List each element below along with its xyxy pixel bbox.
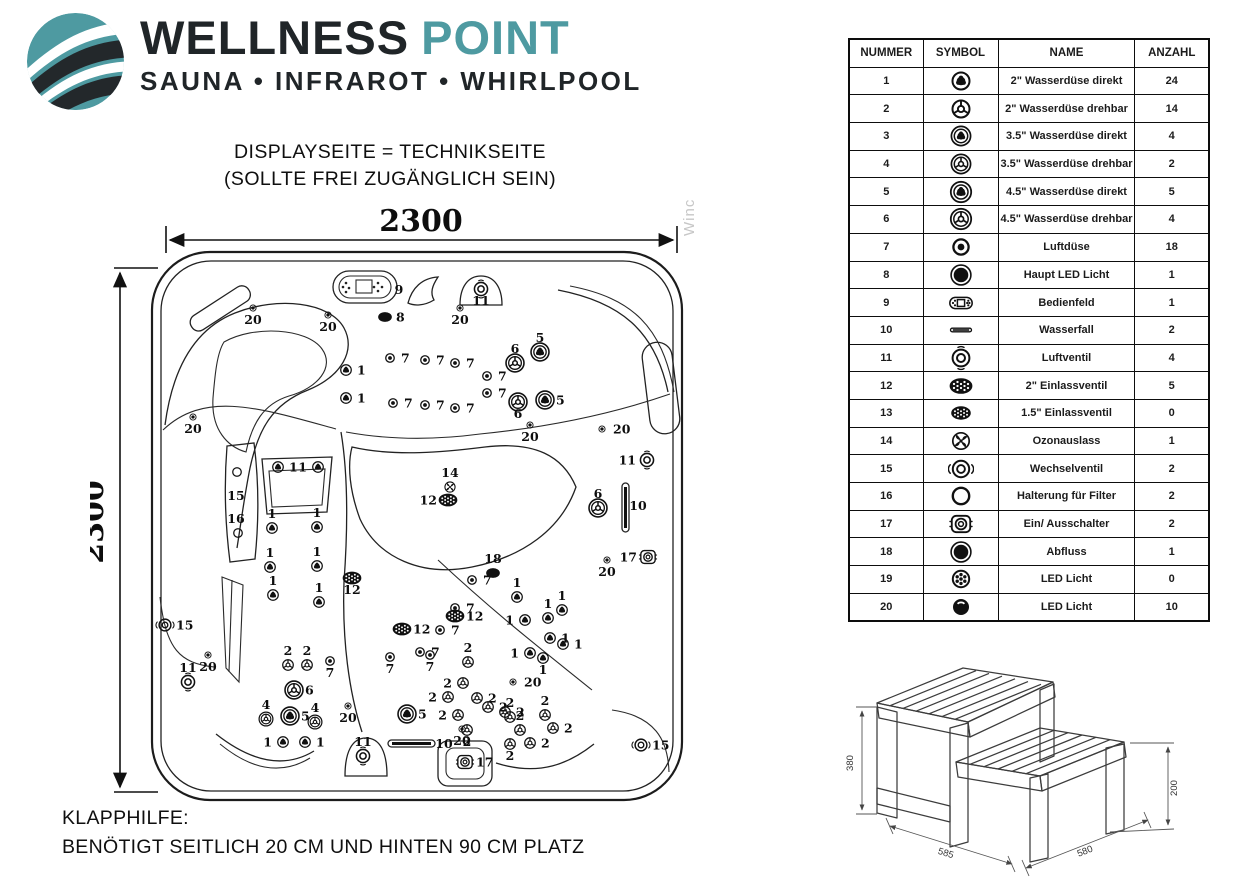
part-name: 2" Wasserdüse drehbar [998,95,1135,123]
parts-table: NUMMER SYMBOL NAME ANZAHL 12" Wasserdüse… [848,38,1210,622]
jet-marker-7: 7 [436,623,460,638]
part-name: Luftventil [998,344,1135,372]
svg-text:1: 1 [357,363,366,378]
svg-text:2: 2 [303,643,312,658]
table-row: 16Halterung für Filter2 [849,483,1209,511]
svg-text:20: 20 [199,659,217,674]
part-number: 13 [849,399,923,427]
jet-marker-5: 5 [398,705,427,723]
brand-secondary: POINT [421,11,570,64]
table-row: 12" Wasserdüse direkt24 [849,67,1209,95]
part-qty: 0 [1135,566,1209,594]
svg-text:2: 2 [541,693,550,708]
part-qty: 10 [1135,593,1209,621]
height-dimension: 2300 [90,480,111,564]
svg-text:1: 1 [316,735,325,750]
jet-4.5in-rotate-icon [948,206,974,232]
svg-text:1: 1 [268,506,277,521]
svg-text:2: 2 [464,640,473,655]
svg-text:20: 20 [613,422,631,437]
part-name: 4.5" Wasserdüse direkt [998,178,1135,206]
whirlpool-top-view-diagram: 2300 2300 Winc [90,196,710,818]
logo-text: WELLNESSPOINT SAUNA • INFRAROT • WHIRLPO… [140,12,642,97]
jet-marker-20: 20 [599,422,631,437]
svg-text:4: 4 [311,700,320,715]
jet-marker-1: 1 [312,544,323,571]
svg-text:7: 7 [401,351,410,366]
jet-marker-8: 8 [378,310,405,325]
table-row: 10Wasserfall2 [849,316,1209,344]
jet-marker-7: 7 [386,351,410,366]
part-qty: 2 [1135,150,1209,178]
svg-text:20: 20 [598,564,616,579]
svg-text:7: 7 [466,356,475,371]
display-side-note: DISPLAYSEITE = TECHNIKSEITE (SOLLTE FREI… [140,139,640,193]
svg-text:2: 2 [438,708,447,723]
air-jet-icon [948,234,974,260]
part-name: Ein/ Ausschalter [998,510,1135,538]
jet-marker-11: 11 [179,660,196,691]
note-bottom-line1: KLAPPHILFE: [62,804,584,833]
part-name: 4.5" Wasserdüse drehbar [998,206,1135,234]
jet-marker-1: 1 [314,580,325,607]
ozone-outlet-icon [948,428,974,454]
svg-text:2: 2 [463,734,472,749]
svg-text:11: 11 [354,734,371,749]
svg-text:1: 1 [357,391,366,406]
svg-text:12: 12 [420,493,437,508]
svg-text:20: 20 [521,429,539,444]
jet-3.5in-rotate-icon [948,151,974,177]
jet-marker-2: 2 [302,643,313,670]
svg-text:1: 1 [315,580,324,595]
part-number: 5 [849,178,923,206]
jet-marker-2: 2 [515,708,526,735]
jet-marker-7: 7 [389,396,413,411]
jet-marker-15: 15 [632,738,669,753]
part-name: Haupt LED Licht [998,261,1135,289]
part-name: Wasserfall [998,316,1135,344]
jet-marker-1: 1 [267,506,278,533]
table-row: 43.5" Wasserdüse drehbar2 [849,150,1209,178]
note-top-line1: DISPLAYSEITE = TECHNIKSEITE [140,139,640,166]
jet-marker-1: 1 [558,637,583,652]
svg-text:6: 6 [511,341,520,356]
jet-marker-12: 12 [343,572,361,597]
table-row: 122" Einlassventil5 [849,372,1209,400]
part-name: Bedienfeld [998,289,1135,317]
part-number: 4 [849,150,923,178]
svg-text:7: 7 [498,386,507,401]
svg-text:1: 1 [263,735,272,750]
jet-marker- [233,468,242,477]
svg-text:1: 1 [505,613,514,628]
part-number: 6 [849,206,923,234]
watermark-text: Winc [681,199,698,236]
jet-label: 9 [395,282,404,297]
table-row: 17Ein/ Ausschalter2 [849,510,1209,538]
svg-text:6: 6 [514,406,523,421]
jet-marker-18: 18 [484,551,502,578]
part-qty: 18 [1135,233,1209,261]
jet-marker-5: 5 [531,330,549,361]
part-name: LED Licht [998,566,1135,594]
jet-marker-14: 14 [441,465,459,492]
svg-text:5: 5 [556,393,565,408]
jet-marker-1: 1 [298,460,323,475]
table-row: 9Bedienfeld1 [849,289,1209,317]
part-number: 7 [849,233,923,261]
part-number: 19 [849,566,923,594]
table-row: 131.5" Einlassventil0 [849,399,1209,427]
svg-text:7: 7 [386,661,395,676]
jet-label: 16 [227,511,245,526]
svg-text:12: 12 [343,582,360,597]
part-qty: 5 [1135,178,1209,206]
control-panel-icon [948,290,974,316]
svg-text:20: 20 [184,421,202,436]
svg-text:2: 2 [564,721,573,736]
table-row: 7Luftdüse18 [849,233,1209,261]
jet-label: 10 [629,498,647,513]
jet-marker-7: 7 [451,401,475,416]
part-number: 18 [849,538,923,566]
svg-text:20: 20 [524,675,542,690]
part-number: 3 [849,123,923,151]
table-row: 18Abfluss1 [849,538,1209,566]
jet-marker-11: 11 [472,280,489,308]
jet-label: 15 [227,488,244,503]
jet-marker-12: 12 [393,622,430,637]
brand-name: WELLNESSPOINT [140,12,642,64]
table-row: 14Ozonauslass1 [849,427,1209,455]
svg-text:2: 2 [443,676,452,691]
part-qty: 4 [1135,123,1209,151]
jet-label: 10 [435,736,453,751]
jet-marker-2: 2 [505,739,516,763]
svg-text:1: 1 [558,588,567,603]
jet-marker-7: 7 [421,398,445,413]
jet-marker-11: 11 [354,734,371,765]
jet-marker-7: 7 [326,657,335,680]
jet-marker-15: 15 [156,618,193,633]
col-header-nummer: NUMMER [849,39,923,67]
jet-marker-5: 5 [281,707,310,725]
jet-marker-2: 2 [548,721,573,736]
table-row: 54.5" Wasserdüse direkt5 [849,178,1209,206]
part-qty: 2 [1135,483,1209,511]
part-qty: 1 [1135,538,1209,566]
svg-text:9: 9 [395,282,404,297]
jet-marker-1: 1 [512,575,523,602]
part-qty: 1 [1135,261,1209,289]
svg-text:10: 10 [629,498,647,513]
logo: WELLNESSPOINT SAUNA • INFRAROT • WHIRLPO… [26,12,642,111]
table-row: 8Haupt LED Licht1 [849,261,1209,289]
jet-marker-1: 1 [263,735,288,750]
steps-height-step: 200 [1169,780,1180,796]
svg-text:20: 20 [451,312,469,327]
jet-marker- [234,529,243,538]
dimension-lines: 2300 2300 [90,204,677,792]
jet-marker-1: 1 [543,596,554,623]
part-qty: 4 [1135,344,1209,372]
steps-diagram: 380 200 585 580 [835,650,1234,888]
part-qty: 0 [1135,399,1209,427]
jet-marker-20: 20 [451,305,469,327]
jet-marker-7: 7 [421,353,445,368]
jet-marker-1: 1 [268,573,279,600]
part-number: 20 [849,593,923,621]
svg-text:10: 10 [435,736,453,751]
brand-tagline: SAUNA • INFRAROT • WHIRLPOOL [140,66,642,97]
jet-marker-2: 2 [463,640,474,667]
logo-globe-icon [26,12,125,111]
jet-marker-1: 1 [505,613,530,628]
jet-marker-1: 1 [538,653,549,677]
inlet-valve-2in-icon [948,373,974,399]
svg-text:1: 1 [269,573,278,588]
svg-text:20: 20 [339,710,357,725]
svg-text:7: 7 [326,665,335,680]
part-number: 12 [849,372,923,400]
jet-marker-17: 17 [620,550,657,565]
svg-text:15: 15 [227,488,244,503]
svg-text:2: 2 [428,690,437,705]
part-number: 1 [849,67,923,95]
svg-text:7: 7 [498,369,507,384]
steps-height-total: 380 [845,755,856,771]
table-row: 11Luftventil4 [849,344,1209,372]
svg-text:2: 2 [506,695,515,710]
svg-text:2: 2 [284,643,293,658]
jet-marker-1: 1 [265,545,276,572]
led-light-dark-icon [948,594,974,620]
part-number: 9 [849,289,923,317]
part-name: Ozonauslass [998,427,1135,455]
part-name: Wechselventil [998,455,1135,483]
col-header-name: NAME [998,39,1135,67]
col-header-symbol: SYMBOL [923,39,998,67]
table-row: 19LED Licht0 [849,566,1209,594]
part-name: 2" Einlassventil [998,372,1135,400]
jet-marker-5: 5 [536,391,565,409]
jet-marker-6: 6 [285,681,314,699]
svg-text:5: 5 [418,707,427,722]
jet-marker-7: 7 [483,386,507,401]
jet-marker-20: 20 [510,675,542,690]
part-number: 14 [849,427,923,455]
svg-text:2: 2 [541,736,550,751]
svg-text:1: 1 [289,460,298,475]
part-number: 8 [849,261,923,289]
jet-markers-layer: 2020202089111177777777656520201110172067… [156,280,669,769]
jet-marker-7: 7 [483,369,507,384]
svg-text:11: 11 [472,293,489,308]
svg-text:16: 16 [227,511,245,526]
jet-marker-20: 20 [521,422,539,444]
steps-depth-left: 585 [937,846,955,861]
table-row: 22" Wasserdüse drehbar14 [849,95,1209,123]
jet-2in-direct-icon [948,68,974,94]
svg-text:11: 11 [179,660,196,675]
jet-marker-6: 6 [589,486,607,517]
klapphilfe-note: KLAPPHILFE: BENÖTIGT SEITLICH 20 CM UND … [62,804,584,862]
jet-marker-1: 1 [273,460,298,475]
jet-marker-11: 11 [619,451,654,469]
power-switch-icon [948,511,974,537]
table-header-row: NUMMER SYMBOL NAME ANZAHL [849,39,1209,67]
main-led-icon [948,262,974,288]
part-number: 16 [849,483,923,511]
jet-marker-2: 2 [525,736,550,751]
svg-text:5: 5 [536,330,545,345]
svg-text:8: 8 [396,310,405,325]
part-name: 3.5" Wasserdüse drehbar [998,150,1135,178]
svg-text:6: 6 [305,683,314,698]
part-number: 10 [849,316,923,344]
jet-marker-20: 20 [199,652,217,674]
jet-marker-20: 20 [319,312,337,334]
jet-marker-1: 1 [557,588,568,615]
waterfall-icon [948,317,974,343]
svg-text:1: 1 [544,596,553,611]
part-number: 11 [849,344,923,372]
svg-text:7: 7 [451,623,460,638]
jet-marker-1: 1 [341,363,366,378]
table-row: 64.5" Wasserdüse drehbar4 [849,206,1209,234]
part-number: 2 [849,95,923,123]
jet-3.5in-direct-icon [948,123,974,149]
note-bottom-line2: BENÖTIGT SEITLICH 20 CM UND HINTEN 90 CM… [62,833,584,862]
svg-text:1: 1 [574,637,583,652]
svg-text:4: 4 [262,697,271,712]
svg-text:1: 1 [513,575,522,590]
svg-text:1: 1 [313,505,322,520]
svg-text:1: 1 [313,544,322,559]
svg-text:18: 18 [484,551,502,566]
svg-text:11: 11 [619,453,636,468]
part-name: Luftdüse [998,233,1135,261]
svg-text:7: 7 [466,401,475,416]
svg-text:14: 14 [441,465,459,480]
part-qty: 5 [1135,372,1209,400]
step-stool-drawing: 380 200 585 580 [845,668,1180,876]
col-header-anzahl: ANZAHL [1135,39,1209,67]
part-name: 1.5" Einlassventil [998,399,1135,427]
part-name: Halterung für Filter [998,483,1135,511]
filter-mount-icon [948,483,974,509]
table-row: 15Wechselventil2 [849,455,1209,483]
svg-text:17: 17 [620,550,637,565]
jet-marker-12: 12 [420,493,457,508]
part-name: LED Licht [998,593,1135,621]
jet-marker-2: 2 [443,676,468,691]
jet-marker-2: 2 [428,690,453,705]
part-name: 3.5" Wasserdüse direkt [998,123,1135,151]
part-qty: 24 [1135,67,1209,95]
svg-text:2: 2 [516,708,525,723]
svg-text:7: 7 [436,353,445,368]
inlet-valve-1.5in-icon [948,400,974,426]
svg-text:12: 12 [413,622,430,637]
svg-text:2: 2 [506,748,515,763]
note-top-line2: (SOLLTE FREI ZUGÄNGLICH SEIN) [140,166,640,193]
jet-marker-7: 7 [386,653,395,676]
brand-primary: WELLNESS [140,11,409,64]
part-name: Abfluss [998,538,1135,566]
jet-marker-20: 20 [184,414,202,436]
steps-depth-right: 580 [1076,844,1095,860]
part-qty: 1 [1135,289,1209,317]
svg-text:7: 7 [404,396,413,411]
jet-marker-4: 4 [308,700,322,729]
part-name: 2" Wasserdüse direkt [998,67,1135,95]
part-qty: 1 [1135,427,1209,455]
part-qty: 14 [1135,95,1209,123]
svg-text:7: 7 [436,398,445,413]
svg-text:17: 17 [476,755,493,770]
svg-text:15: 15 [652,738,669,753]
part-number: 17 [849,510,923,538]
svg-text:15: 15 [176,618,193,633]
part-qty: 4 [1135,206,1209,234]
jet-marker-1: 1 [341,391,366,406]
table-row: 20LED Licht10 [849,593,1209,621]
jet-marker-17: 17 [456,755,493,770]
jet-marker-6: 6 [509,393,527,421]
jet-marker-7: 7 [451,356,475,371]
diverter-valve-icon [948,456,974,482]
svg-text:1: 1 [298,460,307,475]
width-dimension: 2300 [379,204,463,239]
jet-marker-2: 2 [540,693,551,720]
part-qty: 2 [1135,455,1209,483]
svg-text:7: 7 [426,659,435,674]
drain-icon [948,539,974,565]
jet-marker-1: 1 [300,735,325,750]
jet-marker-12: 12 [446,609,483,624]
part-number: 15 [849,455,923,483]
jet-marker-1: 1 [312,505,323,532]
table-row: 33.5" Wasserdüse direkt4 [849,123,1209,151]
svg-text:20: 20 [319,319,337,334]
jet-marker-2: 2 [283,643,294,670]
jet-marker-6: 6 [506,341,524,372]
svg-text:6: 6 [594,486,603,501]
air-valve-icon [948,345,974,371]
page: WELLNESSPOINT SAUNA • INFRAROT • WHIRLPO… [0,0,1234,890]
jet-2in-rotate-icon [948,96,974,122]
svg-text:12: 12 [466,609,483,624]
jet-marker-1: 1 [510,646,535,661]
part-qty: 2 [1135,510,1209,538]
svg-text:20: 20 [244,312,262,327]
jet-marker-2: 2 [505,695,516,722]
part-qty: 2 [1135,316,1209,344]
jet-4.5in-direct-icon [948,179,974,205]
jet-marker-2: 2 [438,708,463,723]
jet-marker-20: 20 [598,557,616,579]
svg-text:1: 1 [266,545,275,560]
svg-text:1: 1 [510,646,519,661]
jet-marker-4: 4 [259,697,273,726]
tub-outline [152,252,682,800]
led-light-icon [948,566,974,592]
